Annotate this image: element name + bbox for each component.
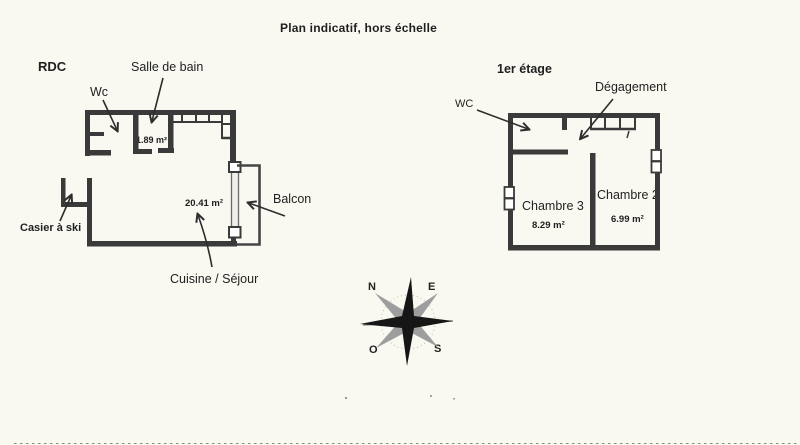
rdc-sdb-left-wall — [133, 112, 139, 153]
compass-main-star — [360, 277, 453, 366]
rdc-wc-door-stub — [85, 132, 104, 136]
rdc-right-wall — [230, 110, 236, 163]
rdc-annotation-arrows — [60, 78, 285, 267]
rdc-plan — [61, 110, 260, 247]
degagement-arrow — [581, 99, 613, 138]
etage1-wc-wall — [511, 150, 568, 155]
rdc-sdb-right-wall — [168, 110, 174, 153]
balcony-sliding-door — [229, 162, 241, 238]
sliding-door-end-top — [229, 162, 241, 172]
etage1-stairs-icon — [590, 118, 636, 138]
sliding-door-track — [232, 171, 239, 228]
etage1-wc-arrow — [477, 110, 528, 129]
rdc-bottom-wall — [87, 241, 237, 247]
etage1-door-stub — [562, 117, 567, 130]
balcon-arrow — [249, 203, 285, 216]
scan-artifacts — [14, 395, 799, 444]
etage1-plan — [505, 113, 662, 251]
etage1-right-wall — [655, 113, 660, 250]
etage1-top-wall — [508, 113, 660, 118]
rdc-wc-foot-wall — [85, 150, 111, 156]
casier-right-wall — [87, 178, 92, 246]
rdc-sdb-left-foot — [133, 149, 152, 154]
chambre3-window-icon — [505, 187, 515, 210]
scanned-floor-plan-page: Plan indicatif, hors échelle RDC Salle d… — [0, 0, 800, 445]
floor-plan-drawing — [0, 0, 800, 445]
chambre2-window-icon — [652, 150, 662, 173]
etage1-bottom-wall — [508, 245, 660, 251]
sliding-door-end-bottom — [229, 227, 241, 238]
etage1-left-wall — [508, 113, 513, 250]
compass-rose-icon — [360, 277, 453, 366]
rdc-sdb-right-foot — [158, 148, 174, 153]
etage1-annotation-arrows — [477, 99, 613, 138]
etage1-middle-wall — [590, 153, 596, 246]
rdc-stairs-icon — [172, 112, 236, 139]
